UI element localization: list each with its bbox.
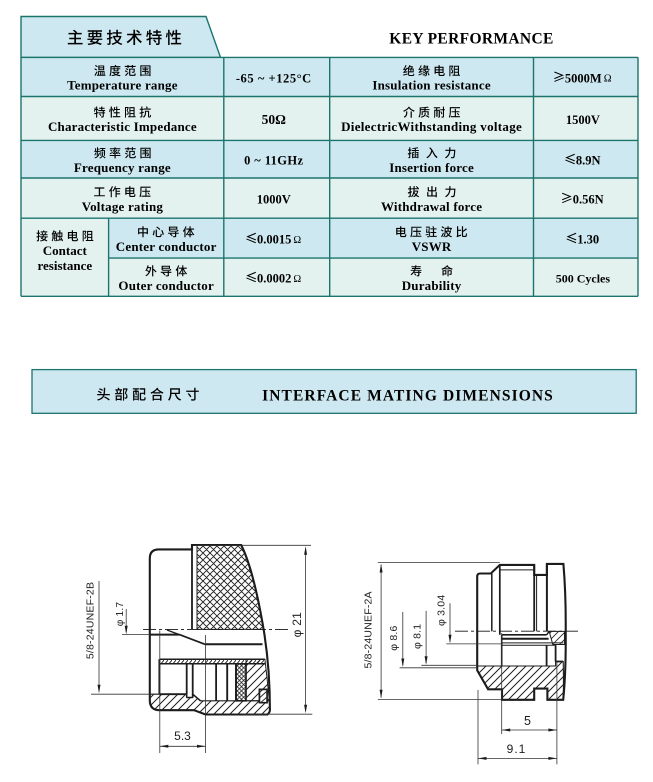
svg-text:50Ω: 50Ω	[262, 112, 287, 127]
svg-text:5.3: 5.3	[174, 729, 191, 743]
svg-text:INTERFACE MATING DIMENSIONS: INTERFACE MATING DIMENSIONS	[262, 387, 554, 404]
svg-text:-65 ~ +125°C: -65 ~ +125°C	[236, 72, 312, 86]
svg-text:Insertion force: Insertion force	[389, 160, 474, 175]
svg-text:KEY PERFORMANCE: KEY PERFORMANCE	[389, 31, 553, 48]
svg-text:0.56N: 0.56N	[573, 193, 604, 207]
svg-text:φ 8.1: φ 8.1	[411, 624, 423, 649]
svg-text:1500V: 1500V	[566, 113, 600, 127]
svg-text:Contact: Contact	[43, 243, 88, 258]
svg-text:Voltage rating: Voltage rating	[82, 199, 164, 214]
svg-text:500 Cycles: 500 Cycles	[556, 272, 611, 286]
svg-text:8.9N: 8.9N	[576, 154, 601, 168]
svg-text:Frequency range: Frequency range	[74, 160, 171, 175]
svg-text:0.0002: 0.0002	[257, 272, 291, 286]
svg-text:DielectricWithstanding voltage: DielectricWithstanding voltage	[341, 119, 522, 134]
svg-text:Durability: Durability	[402, 278, 462, 293]
svg-text:Ω: Ω	[293, 235, 301, 246]
svg-text:5: 5	[524, 714, 531, 728]
svg-text:Outer conductor: Outer conductor	[118, 278, 214, 293]
svg-text:Withdrawal force: Withdrawal force	[381, 199, 482, 214]
svg-text:Characteristic Impedance: Characteristic Impedance	[48, 119, 197, 134]
svg-text:φ 21: φ 21	[290, 612, 304, 637]
svg-text:0.0015: 0.0015	[257, 233, 291, 247]
svg-text:Insulation resistance: Insulation resistance	[372, 78, 490, 93]
svg-text:Ω: Ω	[604, 74, 612, 85]
svg-text:φ 3.04: φ 3.04	[436, 595, 448, 626]
svg-text:9.1: 9.1	[507, 742, 527, 756]
svg-text:resistance: resistance	[37, 258, 92, 273]
svg-text:1000V: 1000V	[257, 193, 291, 207]
svg-text:0 ~ 11GHz: 0 ~ 11GHz	[244, 154, 303, 168]
svg-text:φ 1.7: φ 1.7	[115, 602, 126, 627]
svg-text:5/8-24UNEF-2A: 5/8-24UNEF-2A	[363, 591, 375, 668]
svg-text:φ 8.6: φ 8.6	[388, 625, 400, 650]
svg-text:5000M: 5000M	[565, 72, 602, 86]
svg-text:Temperature range: Temperature range	[67, 78, 178, 93]
svg-text:VSWR: VSWR	[412, 239, 452, 254]
svg-text:Ω: Ω	[293, 274, 301, 285]
svg-text:1.30: 1.30	[577, 233, 599, 247]
svg-text:5/8-24UNEF-2B: 5/8-24UNEF-2B	[85, 582, 97, 659]
svg-text:Center conductor: Center conductor	[116, 239, 217, 254]
